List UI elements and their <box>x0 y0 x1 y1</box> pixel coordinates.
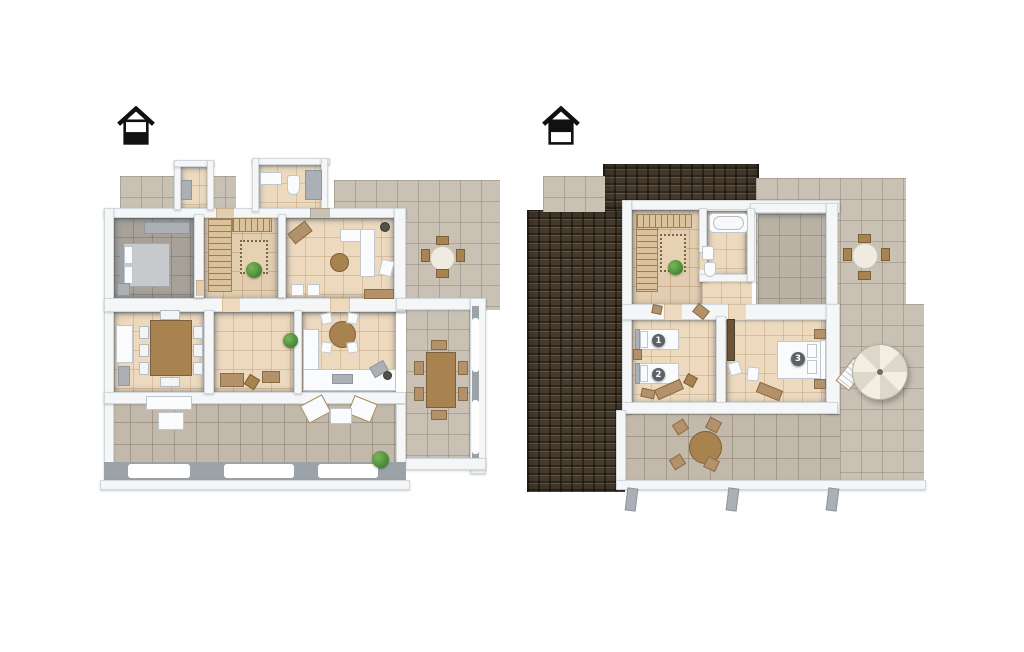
patio-chair <box>881 248 890 261</box>
bed-badge-3: 3 <box>791 352 805 366</box>
pillow <box>807 360 817 374</box>
wall-east <box>826 304 840 414</box>
nightstand <box>814 379 826 389</box>
patio-chair <box>858 271 871 280</box>
terrace-south <box>622 414 840 488</box>
stair-run <box>636 214 692 228</box>
wall-south <box>622 402 838 414</box>
patio-chair <box>858 234 871 243</box>
support-post <box>826 487 840 511</box>
patio-chair <box>843 248 852 261</box>
toilet <box>704 262 716 277</box>
potted-plant <box>668 260 683 275</box>
bed-badge-1: 1 <box>652 334 665 347</box>
bed-headboard <box>820 340 826 380</box>
roof-west <box>527 210 625 492</box>
floor-plan-canvas: 1 2 3 <box>0 0 1024 652</box>
loggia-floor <box>758 214 828 304</box>
pillow <box>807 344 817 358</box>
house-upper-floor-icon <box>541 104 581 148</box>
upper-floor-plan: 1 2 3 <box>0 0 1024 652</box>
bathroom-sink <box>702 246 714 260</box>
bathroom-wall-east <box>747 208 755 282</box>
terrace-rail-west <box>616 410 626 486</box>
parasol-pole <box>877 369 883 375</box>
door-gap <box>728 304 746 320</box>
nightstand <box>814 329 826 339</box>
support-post <box>726 487 740 511</box>
terrace-north-west <box>543 176 605 212</box>
pillow <box>640 331 648 348</box>
hall-furniture <box>651 304 663 315</box>
bed-badge-2: 2 <box>652 368 665 381</box>
hall-floor <box>702 278 752 306</box>
wardrobe <box>727 319 735 361</box>
bathtub-basin <box>713 216 744 230</box>
nightstand <box>633 349 642 360</box>
terrace-rail-south <box>616 480 926 490</box>
door-gap <box>664 304 682 320</box>
pillow <box>640 365 648 382</box>
loggia-wall-east <box>826 203 838 307</box>
wall-bedroom-divider <box>716 316 726 404</box>
chair <box>746 366 759 381</box>
patio-table <box>852 243 878 269</box>
support-post <box>625 487 639 511</box>
